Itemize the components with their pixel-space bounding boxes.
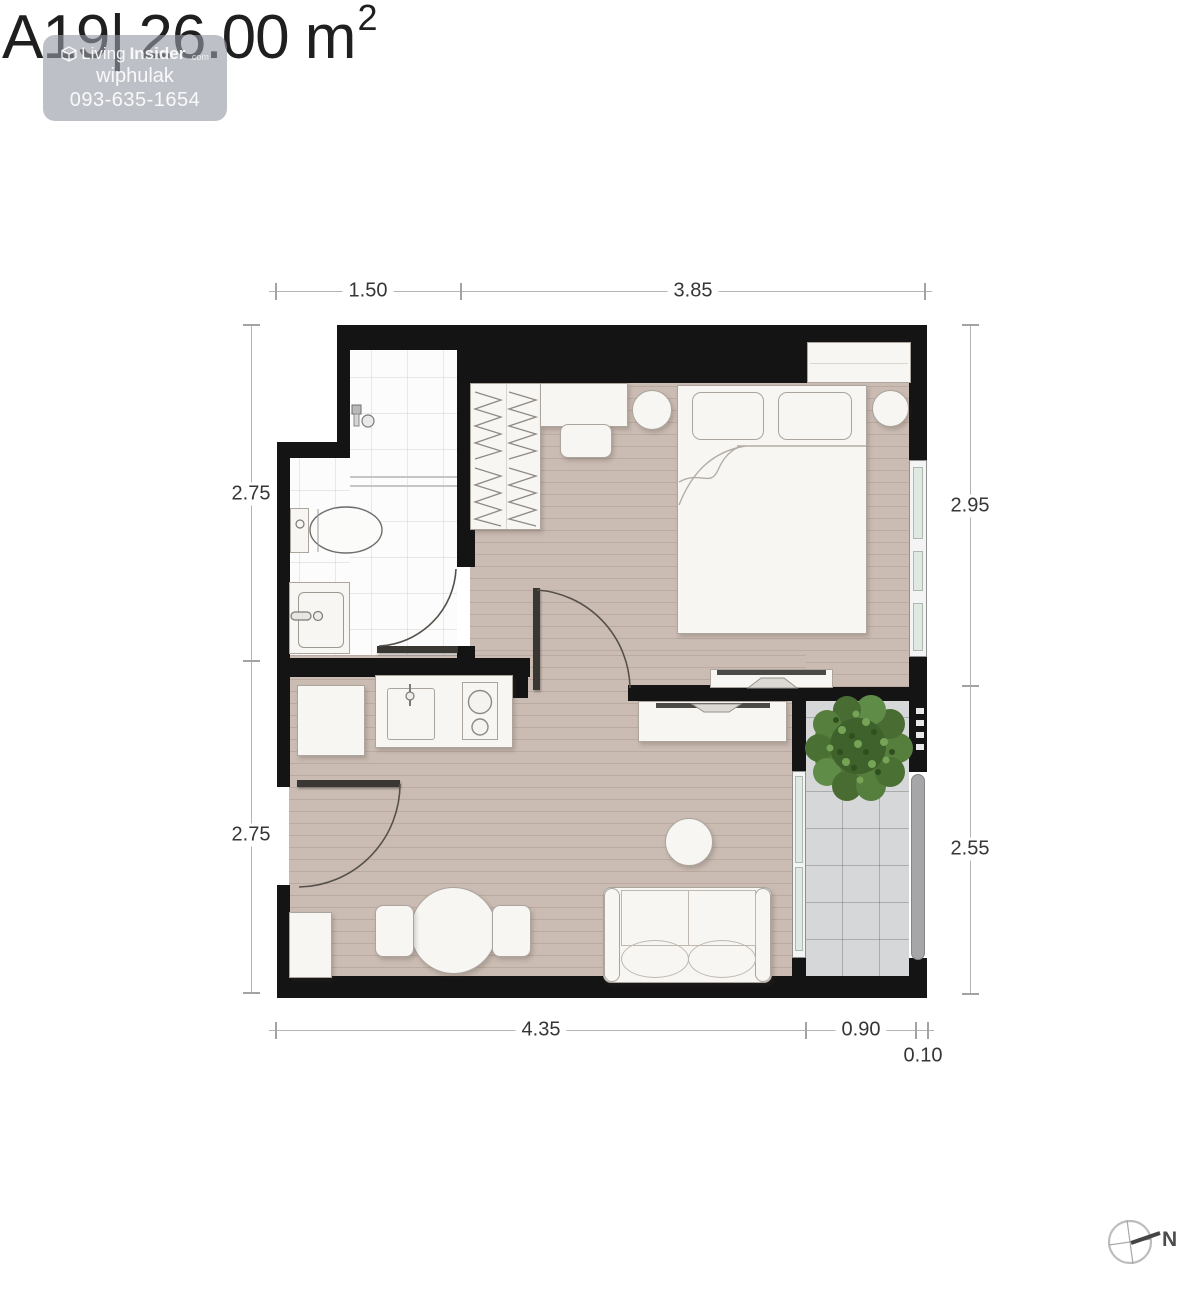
wardrobe: [470, 383, 541, 530]
sofa-seat: [621, 890, 689, 946]
dimension-line-bottom: [269, 1030, 934, 1031]
dining-table: [410, 887, 497, 974]
sofa: [603, 887, 772, 983]
dimension-tick: [962, 685, 979, 687]
shower-screen: [350, 476, 457, 478]
dimension-tick: [924, 283, 926, 300]
sofa-cushion: [688, 940, 756, 978]
dimension-tick: [962, 324, 979, 326]
compass-north-label: N: [1162, 1228, 1177, 1252]
dimension-label: 2.55: [945, 838, 996, 861]
dimension-label: 1.50: [343, 280, 394, 303]
dimension-label: 0.10: [898, 1045, 949, 1068]
sofa-armrest: [755, 888, 771, 982]
dimension-label: 2.95: [945, 495, 996, 518]
dimension-tick: [275, 283, 277, 300]
condenser-vent: [916, 744, 924, 750]
pillow: [778, 392, 852, 440]
cube-logo-icon: [61, 46, 77, 62]
dining-chair: [375, 905, 414, 957]
condenser-vent: [916, 720, 924, 726]
dimension-tick: [243, 992, 260, 994]
wall: [909, 958, 927, 998]
balcony-railing: [911, 774, 925, 960]
condenser-vent: [916, 708, 924, 714]
wall: [457, 325, 807, 383]
bedroom-door: [533, 588, 540, 690]
wall: [513, 677, 528, 698]
dimension-label: 3.85: [668, 280, 719, 303]
dimension-tick: [460, 283, 462, 300]
bedroom-tv: [717, 670, 826, 675]
dimension-tick: [275, 1022, 277, 1039]
vanity: [289, 582, 350, 654]
bathroom-door: [377, 646, 458, 653]
dimension-line-left: [251, 325, 252, 993]
sofa-seat: [688, 890, 756, 946]
fridge: [297, 685, 365, 756]
living-tv: [656, 703, 770, 708]
wall: [909, 325, 927, 462]
dimension-tick: [243, 660, 260, 662]
dimension-tick: [962, 993, 979, 995]
dimension-tick: [805, 1022, 807, 1039]
watermark-brand: LivingInsider.com: [61, 44, 209, 64]
dimension-label: 0.90: [836, 1019, 887, 1042]
shoe-cabinet: [289, 912, 332, 978]
watermark-agent-name: wiphulak: [96, 65, 174, 88]
brand-insider: Insider: [130, 44, 186, 64]
toilet-tank: [290, 508, 309, 553]
brand-suffix: .com: [189, 52, 209, 62]
dimension-line-right: [970, 325, 971, 994]
coffee-table: [665, 818, 713, 866]
balcony-floor: [805, 700, 909, 978]
wall: [797, 687, 909, 701]
watermark-agent-phone: 093-635-1654: [70, 89, 201, 112]
dimension-tick: [915, 1022, 917, 1039]
pillow: [692, 392, 764, 440]
sofa-armrest: [604, 888, 620, 982]
brand-living: Living: [81, 44, 125, 64]
desk: [540, 383, 628, 427]
entry-door: [297, 780, 400, 787]
unit-area-exponent: 2: [357, 0, 376, 38]
wall: [277, 976, 927, 998]
floor-plan-page: A19|26.00 m2 LivingInsider.com wiphulak …: [0, 0, 1200, 1316]
built-in-closet: [807, 342, 911, 383]
dimension-tick: [927, 1022, 929, 1039]
stove: [462, 682, 498, 740]
sofa-cushion: [621, 940, 689, 978]
wall: [337, 325, 350, 458]
bathroom-floor: [350, 350, 457, 660]
compass-icon: [1109, 1220, 1160, 1264]
dining-chair: [492, 905, 531, 957]
desk-chair: [560, 424, 612, 458]
balcony-sliding-door: [792, 771, 806, 958]
nightstand-right: [872, 390, 909, 427]
bedroom-window: [909, 460, 927, 657]
wall-balcony-jamb: [792, 701, 806, 771]
nightstand-left: [632, 390, 672, 430]
kitchen-sink: [387, 688, 435, 740]
dimension-label: 4.35: [516, 1019, 567, 1042]
bed: [677, 385, 867, 634]
watermark: LivingInsider.com wiphulak 093-635-1654: [43, 35, 227, 121]
dimension-label: 2.75: [226, 483, 277, 506]
wall: [792, 958, 806, 978]
dimension-label: 2.75: [226, 824, 277, 847]
dimension-tick: [243, 324, 260, 326]
shower-screen: [350, 485, 457, 487]
condenser-vent: [916, 732, 924, 738]
